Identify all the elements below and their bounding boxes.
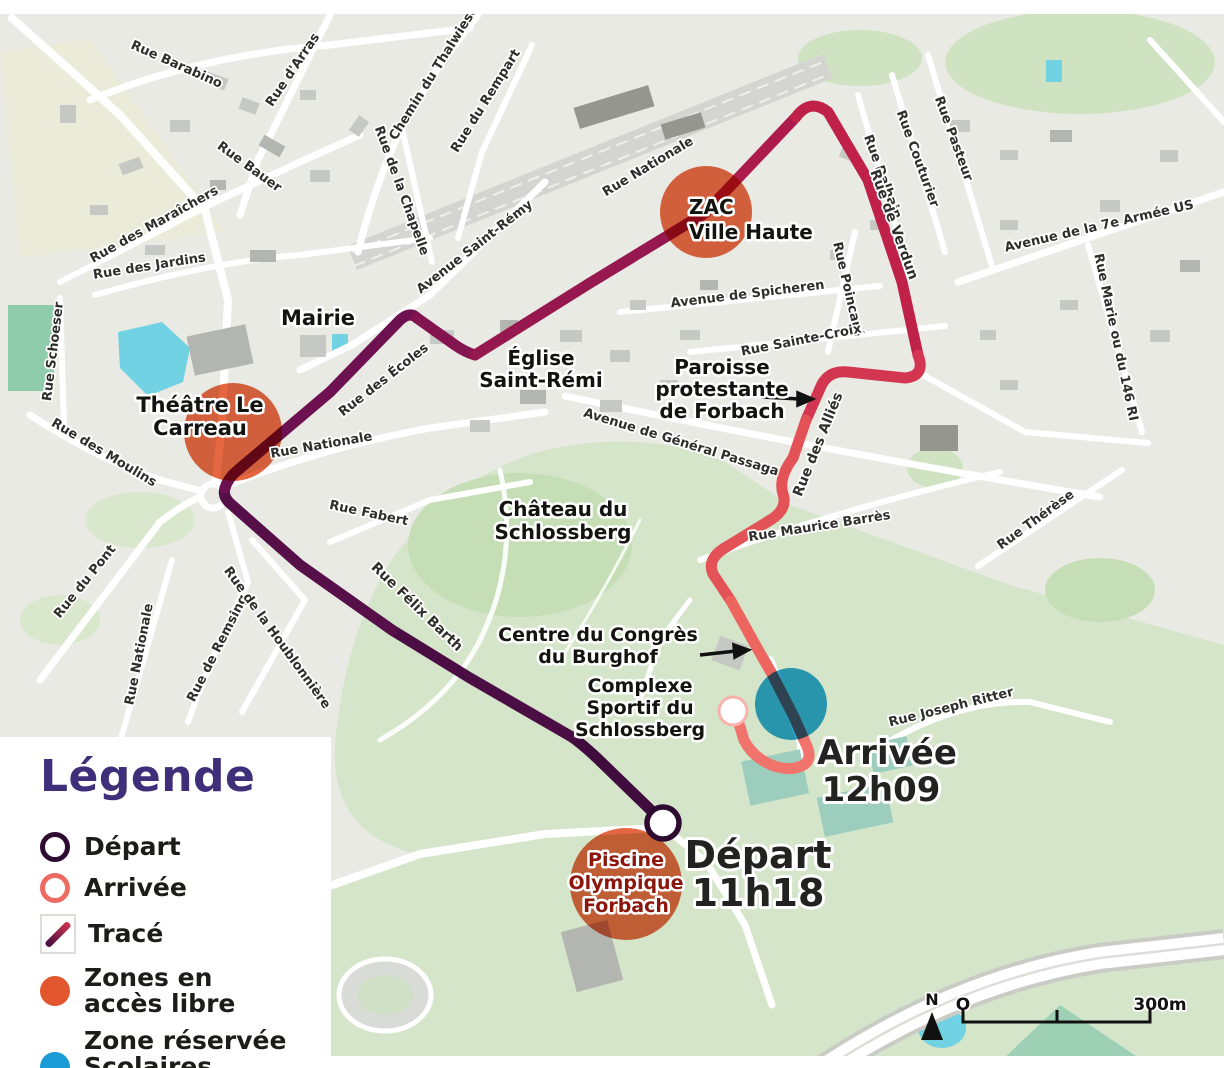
legend-panel: Légende Départ Arrivée Tracé Zones en ac…	[0, 737, 331, 1068]
pond	[1046, 60, 1062, 82]
acces-libre-dot-icon	[40, 976, 70, 1006]
green-patch	[945, 10, 1215, 114]
trace-gradient-icon	[40, 914, 76, 954]
poi-label: ComplexeSportif duSchlossberg	[575, 675, 705, 741]
depart-ring-icon	[40, 832, 70, 862]
depart-marker	[647, 807, 679, 839]
poi-label: Mairie	[281, 306, 355, 330]
legend-item-trace: Tracé	[40, 914, 331, 954]
legend-item-label: Arrivée	[84, 875, 187, 901]
legend-item-label: Départ	[84, 834, 181, 860]
legend-item-label: Zone réservée Scolaires uniquement	[84, 1028, 331, 1068]
poi-label: 12h09	[822, 770, 941, 810]
green-patch	[85, 492, 195, 548]
legend-title: Légende	[40, 751, 331, 802]
arrivee-ring-icon	[40, 873, 70, 903]
poi-label: Paroisseprotestantede Forbach	[655, 355, 788, 423]
legend-item-label: Tracé	[88, 921, 163, 947]
legend-item-arrivee: Arrivée	[40, 873, 331, 903]
legend-item-label: Zones en accès libre	[84, 965, 235, 1017]
poi-label: Arrivée	[817, 733, 957, 773]
legend-item-zones-acces-libre: Zones en accès libre	[40, 965, 331, 1017]
north-label: N	[925, 990, 938, 1009]
torch-route-map: Rue BarabinoRue d'ArrasRue BauerRue des …	[0, 0, 1224, 1068]
legend-item-zone-reservee: Zone réservée Scolaires uniquement	[40, 1028, 331, 1068]
scale-distance-label: 300m	[1133, 995, 1186, 1015]
poi-label: Théâtre LeCarreau	[136, 393, 263, 440]
legend-item-depart: Départ	[40, 832, 331, 862]
zone-reservee-dot-icon	[40, 1052, 70, 1068]
stadium-field	[357, 975, 413, 1015]
arrivee-marker	[719, 697, 747, 725]
poi-label: 11h18	[692, 871, 825, 915]
poi-label: Château duSchlossberg	[495, 497, 632, 544]
green-patch	[1045, 558, 1155, 622]
zone-reservee-scolaires	[755, 668, 827, 740]
